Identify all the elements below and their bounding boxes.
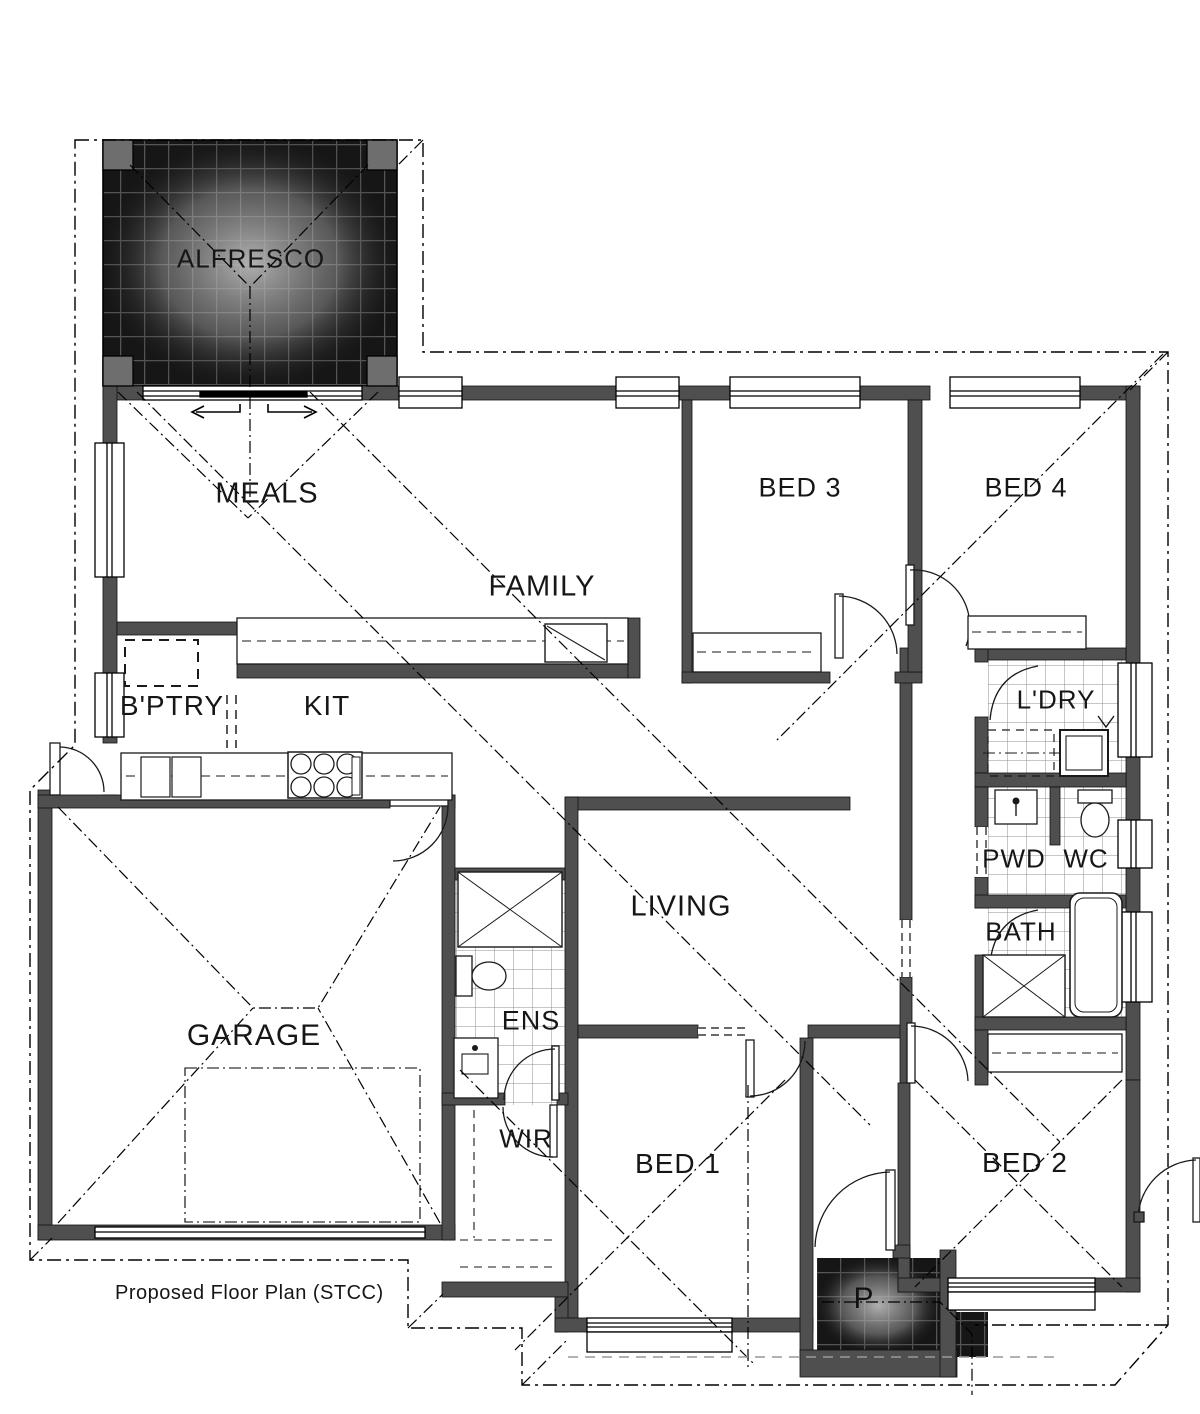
- room-label-bptry: B'PTRY: [120, 690, 224, 722]
- room-label-kit: KIT: [304, 690, 351, 722]
- room-label-bath: BATH: [985, 917, 1056, 948]
- external-side-door: [1134, 1158, 1200, 1222]
- room-label-alfresco: ALFRESCO: [177, 244, 325, 275]
- fixtures: [121, 616, 1122, 1267]
- ens-shower-icon: [458, 872, 562, 947]
- bed3-door: [835, 594, 897, 658]
- room-label-meals: MEALS: [215, 478, 318, 511]
- kitchen-island-bench: [237, 618, 628, 664]
- room-label-ldry: L'DRY: [1017, 685, 1096, 716]
- garage-door: [95, 1227, 425, 1238]
- room-label-porch: P: [853, 1282, 874, 1316]
- room-label-bed4: BED 4: [984, 473, 1067, 504]
- bed2-robe: [988, 1034, 1122, 1072]
- wall-openings-dashed: [227, 695, 988, 1036]
- plan-caption: Proposed Floor Plan (STCC): [115, 1282, 384, 1305]
- window-bath: [1118, 912, 1152, 1002]
- floor-plan-canvas: ALFRESCO MEALS FAMILY BED 3 BED 4 B'PTRY…: [0, 0, 1200, 1414]
- room-label-garage: GARAGE: [187, 1019, 321, 1053]
- window-family-top: [616, 377, 679, 408]
- sliding-door-alfresco: [143, 386, 362, 400]
- bath-shower-icon: [983, 955, 1065, 1017]
- bed1-door: [746, 1040, 805, 1097]
- window-ldry: [1118, 663, 1152, 757]
- room-label-pwd: PWD: [982, 844, 1046, 875]
- window-bed3: [730, 377, 860, 408]
- window-bed4: [950, 377, 1080, 408]
- wc-toilet-icon: [1078, 790, 1112, 837]
- room-label-living: LIVING: [630, 891, 731, 924]
- ens-vanity-icon: [454, 1038, 498, 1098]
- room-label-wir: WIR: [499, 1124, 553, 1155]
- bathtub-icon: [1070, 893, 1122, 1017]
- room-label-family: FAMILY: [489, 571, 596, 604]
- window-wc: [1118, 820, 1152, 868]
- front-door: [815, 1170, 895, 1250]
- garage-internal-door: [390, 796, 448, 861]
- bed4-robe: [968, 616, 1086, 649]
- room-label-bed1: BED 1: [635, 1148, 721, 1180]
- slider-arrows-icon: [192, 404, 316, 418]
- room-label-bed3: BED 3: [758, 473, 841, 504]
- window-bed1: [587, 1318, 732, 1352]
- entry-door: [50, 743, 104, 795]
- window-meals-top: [399, 377, 462, 408]
- room-label-ens: ENS: [502, 1006, 561, 1037]
- pwd-basin-icon: [995, 790, 1037, 824]
- window-bed2: [948, 1278, 1095, 1310]
- room-label-wc: WC: [1063, 844, 1108, 875]
- kitchen-wall-bench: [121, 753, 452, 800]
- room-label-bed2: BED 2: [982, 1147, 1068, 1179]
- bed3-robe: [693, 633, 821, 672]
- bed2-door: [907, 1023, 968, 1083]
- pantry-shelf: [125, 640, 198, 686]
- cooktop-icon: [288, 752, 362, 798]
- window-meals-left: [95, 443, 124, 577]
